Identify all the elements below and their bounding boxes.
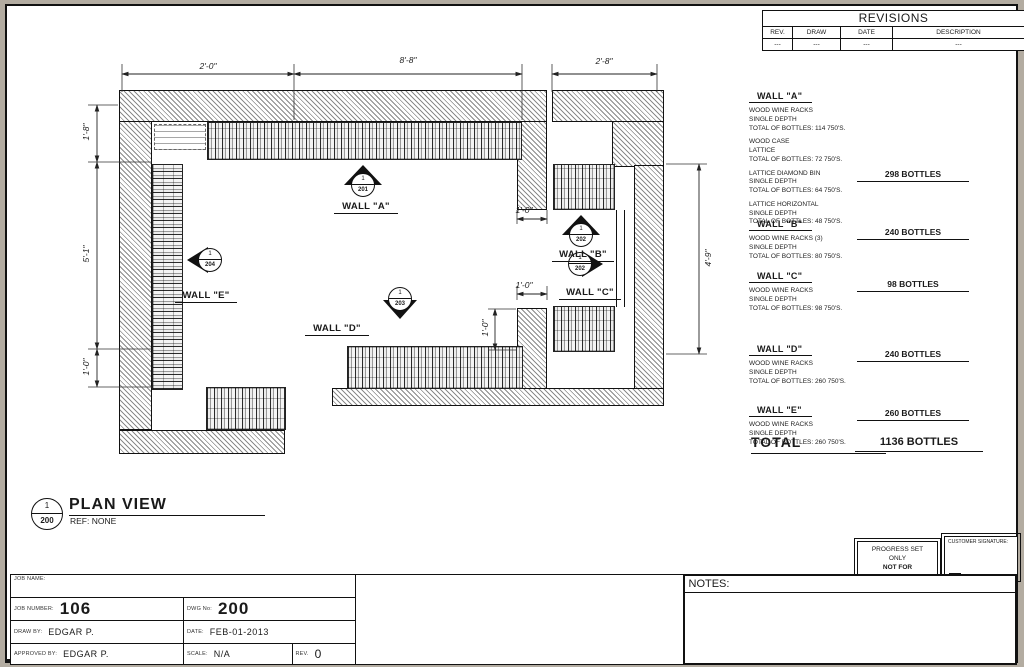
wall-b-label: WALL "B" xyxy=(552,249,614,262)
wall-top xyxy=(119,90,547,122)
spec-item: WOOD WINE RACKS SINGLE DEPTH TOTAL OF BO… xyxy=(749,360,899,386)
approved-by-value: EDGAR P. xyxy=(63,649,109,659)
wall-a-elevation-marker: 1201 xyxy=(344,165,382,199)
wall-right-step xyxy=(612,121,664,167)
job-number-value: 106 xyxy=(60,599,91,619)
dim-right-1: 4'-9" xyxy=(703,230,713,286)
wall-e-elevation-marker: 1204 xyxy=(187,247,223,274)
wall-e-racks xyxy=(152,164,183,390)
wall-d-racks xyxy=(347,346,523,389)
scale-cell: SCALE: N/A xyxy=(183,643,293,666)
job-name-cell: JOB NAME: xyxy=(10,574,356,598)
date-cell: DATE: FEB-01-2013 xyxy=(183,620,356,644)
approved-by-cell: APPROVED BY: EDGAR P. xyxy=(10,643,184,666)
plan-title-marker: 1 200 xyxy=(31,498,63,530)
drawn-by-value: EDGAR P. xyxy=(48,627,94,637)
revisions-col-draw: DRAW xyxy=(793,27,841,38)
grand-total-value: 1136 BOTTLES xyxy=(855,436,983,452)
drawing-sheet: 2'-0" 8'-8" 2'-8" 1'-8" 5'-1" 1'-0" 4'-9… xyxy=(5,4,1018,663)
dim-left-3: 1'-0" xyxy=(81,339,91,395)
wall-c-total: 98 BOTTLES xyxy=(857,279,969,292)
revisions-table: REVISIONS REV. DRAW DATE DESCRIPTION ---… xyxy=(762,10,1024,51)
notes-heading: NOTES: xyxy=(685,576,1016,593)
wall-b-spec: WALL "B" WOOD WINE RACKS (3) SINGLE DEPT… xyxy=(749,214,899,266)
title-block-empty-box xyxy=(355,574,685,665)
wall-left xyxy=(119,121,152,430)
wall-c-spec-heading: WALL "C" xyxy=(749,271,812,283)
wall-d-spec: WALL "D" WOOD WINE RACKS SINGLE DEPTH TO… xyxy=(749,339,899,391)
dwg-number-value: 200 xyxy=(218,599,249,619)
wall-a-spec-heading: WALL "A" xyxy=(749,91,812,103)
dim-left-2: 5'-1" xyxy=(81,226,91,282)
job-number-cell: JOB NUMBER: 106 xyxy=(10,597,184,622)
wall-e-total: 260 BOTTLES xyxy=(857,408,969,421)
wall-a-racks-dashed xyxy=(154,124,206,150)
wall-e-label: WALL "E" xyxy=(175,290,237,303)
rev-value: 0 xyxy=(315,647,322,661)
wall-right xyxy=(634,165,664,406)
wall-d-label: WALL "D" xyxy=(305,323,369,336)
wall-b-total: 240 BOTTLES xyxy=(857,227,969,240)
wall-bottom-left xyxy=(119,430,285,454)
wall-bottom xyxy=(332,388,664,406)
rev-cell: REV. 0 xyxy=(292,643,357,666)
wall-b-racks xyxy=(553,164,615,210)
spec-item: WOOD WINE RACKS SINGLE DEPTH TOTAL OF BO… xyxy=(749,107,899,133)
dim-inner-d: 1'-0" xyxy=(480,300,490,356)
wall-a-spec: WALL "A" WOOD WINE RACKS SINGLE DEPTH TO… xyxy=(749,86,899,232)
dim-inner-c: 1'-0" xyxy=(496,280,552,290)
wall-e-spec-heading: WALL "E" xyxy=(749,405,812,417)
revisions-row: --- --- --- --- xyxy=(763,39,1024,50)
date-value: FEB-01-2013 xyxy=(210,627,269,637)
drawn-by-cell: DRAW BY: EDGAR P. xyxy=(10,620,184,644)
dim-top-1: 2'-0" xyxy=(178,61,238,71)
wall-d-elevation-marker: 1203 xyxy=(380,287,420,320)
plan-view-title: PLAN VIEW xyxy=(69,496,265,516)
wall-top-right xyxy=(552,90,664,122)
customer-signature-box: CUSTOMER SIGNATURE: xyxy=(944,536,1018,579)
spec-item: WOOD CASE LATTICE TOTAL OF BOTTLES: 72 7… xyxy=(749,138,899,164)
wall-c-racks xyxy=(553,306,615,352)
wall-c-spec: WALL "C" WOOD WINE RACKS SINGLE DEPTH TO… xyxy=(749,266,899,318)
revisions-col-rev: REV. xyxy=(763,27,793,38)
wall-b-elevation-marker: 1202 xyxy=(562,215,600,249)
bottom-left-racks xyxy=(206,387,286,430)
scale-value: N/A xyxy=(214,649,231,659)
wall-b-spec-heading: WALL "B" xyxy=(749,219,812,231)
dim-top-2: 8'-8" xyxy=(378,55,438,65)
wall-d-total: 240 BOTTLES xyxy=(857,349,969,362)
revisions-col-description: DESCRIPTION xyxy=(893,27,1024,38)
notes-box: NOTES: xyxy=(683,574,1018,665)
revisions-col-date: DATE xyxy=(841,27,893,38)
dim-left-1: 1'-8" xyxy=(81,104,91,160)
wall-d-spec-heading: WALL "D" xyxy=(749,344,812,356)
dim-top-3: 2'-8" xyxy=(574,56,634,66)
dwg-number-cell: DWG No: 200 xyxy=(183,597,356,622)
wall-a-label: WALL "A" xyxy=(334,201,398,214)
wall-a-racks xyxy=(207,122,522,160)
wall-c-label: WALL "C" xyxy=(559,287,621,300)
dim-inner-b: 1'-0" xyxy=(496,205,552,215)
plan-view-ref: REF: NONE xyxy=(70,516,116,526)
wall-a-total: 298 BOTTLES xyxy=(857,169,969,182)
revisions-title: REVISIONS xyxy=(763,11,1024,27)
